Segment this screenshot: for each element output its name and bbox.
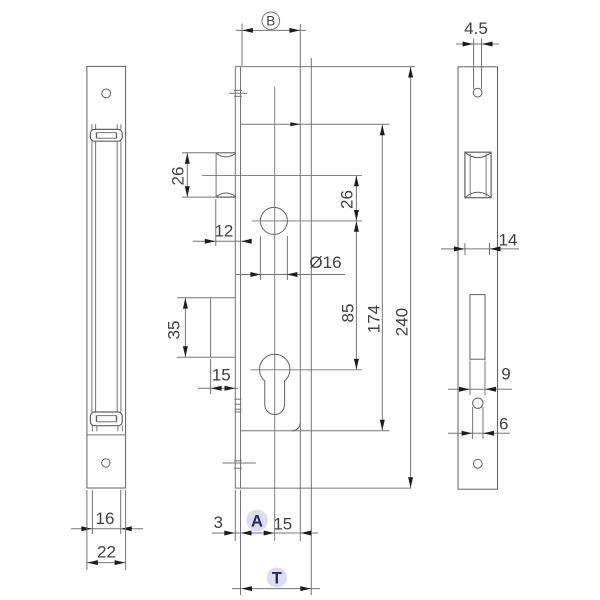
- svg-text:Ø16: Ø16: [309, 253, 341, 272]
- svg-text:A: A: [251, 512, 263, 530]
- svg-text:3: 3: [213, 513, 222, 532]
- svg-text:85: 85: [339, 304, 358, 323]
- svg-text:240: 240: [393, 308, 412, 336]
- svg-text:26: 26: [169, 167, 188, 186]
- svg-text:26: 26: [338, 190, 357, 209]
- svg-text:35: 35: [165, 321, 184, 340]
- svg-text:12: 12: [214, 222, 233, 241]
- svg-text:174: 174: [365, 305, 384, 333]
- svg-text:9: 9: [501, 365, 510, 384]
- svg-text:15: 15: [212, 366, 231, 385]
- svg-text:15: 15: [273, 515, 292, 534]
- svg-text:4.5: 4.5: [464, 19, 488, 38]
- svg-text:22: 22: [97, 543, 116, 562]
- svg-text:T: T: [272, 569, 282, 587]
- svg-text:6: 6: [499, 415, 508, 434]
- svg-text:16: 16: [96, 509, 115, 528]
- svg-text:14: 14: [499, 231, 518, 250]
- svg-text:B: B: [266, 14, 275, 29]
